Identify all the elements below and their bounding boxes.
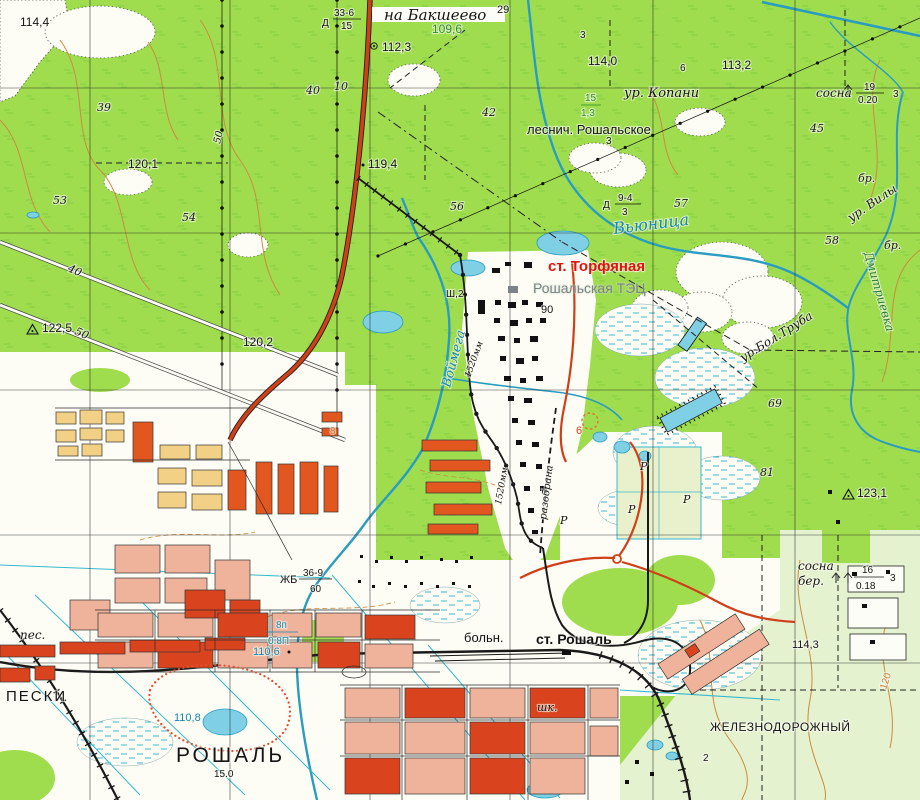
label-num-29: 29 — [497, 4, 509, 16]
label-h-114-3: 114,3 — [792, 639, 819, 651]
label-peski: ПЕСКИ — [6, 688, 67, 705]
label-n-10: 10 — [334, 80, 348, 93]
label-n-69: 69 — [768, 397, 782, 410]
label-g-15: 15 — [585, 93, 597, 104]
label-st-torfyanaya: ст. Торфяная — [548, 258, 645, 275]
label-d-sign-2: Д — [603, 200, 610, 211]
label-n-90: 90 — [541, 304, 553, 316]
label-f-36-9: 36-9 — [303, 568, 323, 579]
label-n-39: 39 — [97, 101, 111, 114]
label-boln: больн. — [464, 630, 504, 645]
tec-building-2 — [508, 286, 518, 293]
label-st-roshal: ст. Рошаль — [536, 631, 612, 647]
label-peat-p4: Р — [559, 514, 568, 527]
label-sosna-2: сосна — [798, 559, 834, 573]
label-n-3c: 3 — [890, 573, 896, 584]
elevation-dot-119-4 — [362, 164, 365, 167]
label-h-120-1: 120,1 — [128, 157, 158, 171]
label-n-3top: 3 — [580, 30, 586, 41]
label-h-109-6: 109,6 — [432, 22, 462, 36]
label-n-53: 53 — [53, 194, 67, 207]
elevation-dot-110-6 — [288, 651, 291, 654]
label-h-120-2: 120,2 — [243, 335, 273, 349]
label-ur-kopani: ур. Копани — [623, 86, 699, 101]
label-n-54: 54 — [182, 211, 196, 224]
label-f-020: 0.20 — [858, 95, 878, 106]
tec-building — [524, 262, 532, 268]
lake-west-industrial — [451, 260, 485, 276]
label-n-45: 45 — [809, 122, 824, 135]
label-br-2: бр. — [884, 239, 901, 252]
label-h-123-1: 123,1 — [857, 486, 887, 500]
label-f-3: 3 — [622, 207, 628, 218]
label-sosna-1: сосна — [816, 86, 852, 100]
label-peat-p3: Р — [682, 493, 691, 506]
label-h-112-3: 112,3 — [382, 40, 411, 54]
label-n-81: 81 — [760, 466, 774, 479]
lake-roshal — [203, 709, 247, 735]
label-h-113-2: 113,2 — [722, 58, 751, 72]
label-n-3b: 3 — [606, 136, 612, 147]
label-sh-2: Ш,2 — [446, 289, 464, 300]
label-f-9-4: 9-4 — [618, 193, 633, 204]
label-kv-33-6: 33-6 — [334, 8, 354, 19]
label-f-19: 19 — [864, 82, 876, 93]
label-red-6: 6 — [576, 425, 582, 437]
label-b-8p: 8п — [276, 620, 287, 631]
label-zhb: ЖБ — [280, 574, 297, 586]
label-n-56: 56 — [450, 200, 464, 213]
label-b-08p: 0.8П — [268, 636, 289, 647]
label-h-114-4: 114,4 — [20, 15, 49, 29]
label-d-sign-1: Д — [322, 18, 329, 29]
label-n-40t: 40 — [305, 84, 320, 97]
label-n-6a: 6 — [680, 63, 686, 74]
label-ber: бер. — [798, 574, 824, 588]
label-kv-15: 15 — [341, 21, 353, 32]
label-h-114-0: 114,0 — [588, 54, 617, 68]
label-roshalskaya-tec: Рошальская ТЭЦ — [533, 280, 646, 296]
label-f-16: 16 — [862, 565, 874, 576]
label-n-3a: 3 — [893, 89, 899, 100]
label-pes: пес. — [20, 628, 45, 642]
label-f-018: 0.18 — [856, 581, 876, 592]
label-n-42: 42 — [481, 106, 496, 119]
label-peat-p1: Р — [639, 460, 648, 473]
label-h-119-4: 119,4 — [368, 157, 397, 171]
label-g-1-3: 1,3 — [581, 108, 595, 119]
label-shk: шк. — [537, 701, 558, 714]
topographic-map: на Бакшеево2933-615Д112,3109,6114,4114,0… — [0, 0, 920, 800]
label-zheleznodorozhny: ЖЕЛЕЗНОДОРОЖНЫЙ — [710, 719, 850, 734]
label-h-15-0: 15.0 — [214, 769, 234, 780]
label-n-58: 58 — [825, 234, 839, 247]
label-h-110-6: 110,6 — [253, 646, 280, 658]
map-canvas: на Бакшеево2933-615Д112,3109,6114,4114,0… — [0, 0, 920, 800]
label-roshal: РОШАЛЬ — [176, 744, 285, 767]
label-n-8o: 8 — [330, 426, 336, 437]
label-br-1: бр. — [858, 172, 875, 185]
label-peat-p2: Р — [627, 503, 636, 516]
label-n-57: 57 — [674, 197, 688, 210]
label-h-122-5: 122,5 — [42, 321, 72, 335]
station-building — [562, 650, 571, 655]
label-n-2b: 2 — [703, 753, 709, 764]
label-f-60: 60 — [310, 584, 322, 595]
label-h-110-8: 110,8 — [174, 712, 201, 724]
label-lesnich: леснич. Рошальское — [527, 122, 651, 137]
